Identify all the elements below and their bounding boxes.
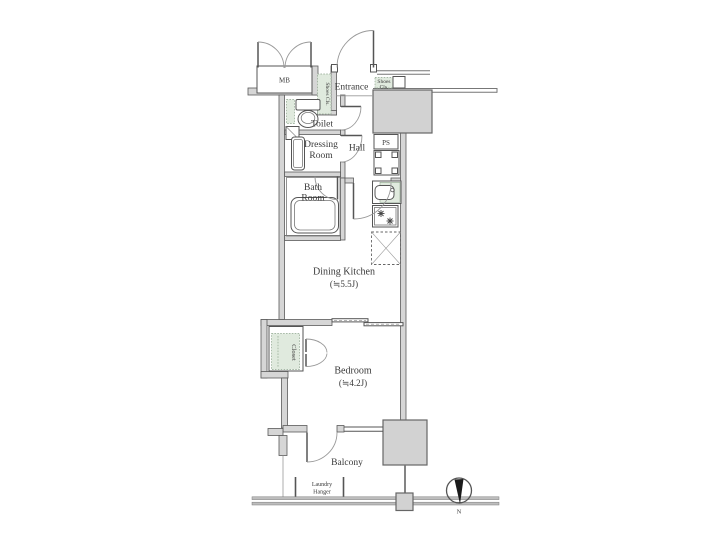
dining-kitchen-size: (≒5.5J)	[330, 279, 358, 289]
sliding-partition	[332, 319, 403, 326]
floorplan-page: MB Shoes Cls. Shoes Cls. PS Toilet	[0, 0, 720, 540]
shaft-block-top	[373, 90, 432, 133]
burner-icon	[378, 210, 385, 217]
mb-label: MB	[279, 77, 290, 85]
railing-post-block	[396, 493, 413, 511]
bath-room-label-2: Room	[301, 194, 325, 204]
bedroom-size: (≒4.2J)	[339, 378, 367, 388]
shoes-closet-left-label: Shoes Cls.	[324, 82, 330, 106]
closet-label: Closet	[290, 344, 297, 361]
entrance-label: Entrance	[335, 83, 369, 93]
kitchen-fixtures	[372, 151, 402, 265]
stove-unit	[373, 206, 399, 228]
burner-icon	[387, 218, 394, 225]
toilet-label: Toilet	[311, 120, 333, 130]
dressing-room-label-2: Room	[309, 151, 333, 161]
dining-kitchen-label: Dining Kitchen	[313, 267, 375, 278]
hall-label: Hall	[349, 144, 366, 154]
closet: Closet	[269, 327, 327, 372]
shoes-closet-right-label-2: Cls.	[380, 85, 389, 91]
bedroom-window	[344, 427, 383, 431]
balcony-label: Balcony	[331, 458, 363, 468]
laundry-hanger-label-1: Laundry	[312, 482, 332, 488]
bedroom-label: Bedroom	[334, 366, 371, 377]
ps-label: PS	[382, 139, 390, 147]
laundry-hanger-label-2: Hanger	[313, 490, 331, 496]
balcony-railing	[252, 497, 499, 500]
compass-north-label: N	[457, 509, 462, 516]
pipe-space: PS	[374, 135, 398, 150]
shaft-block-bottom	[383, 420, 427, 465]
bath-room-label-1: Bath	[304, 183, 322, 193]
toilet-tank	[296, 100, 320, 111]
meter-box: MB	[257, 42, 312, 93]
dressing-room-label-1: Dressing	[304, 140, 338, 150]
bath-room: Bath Room	[287, 177, 341, 237]
floorplan-drawing: MB Shoes Cls. Shoes Cls. PS Toilet	[0, 0, 720, 540]
